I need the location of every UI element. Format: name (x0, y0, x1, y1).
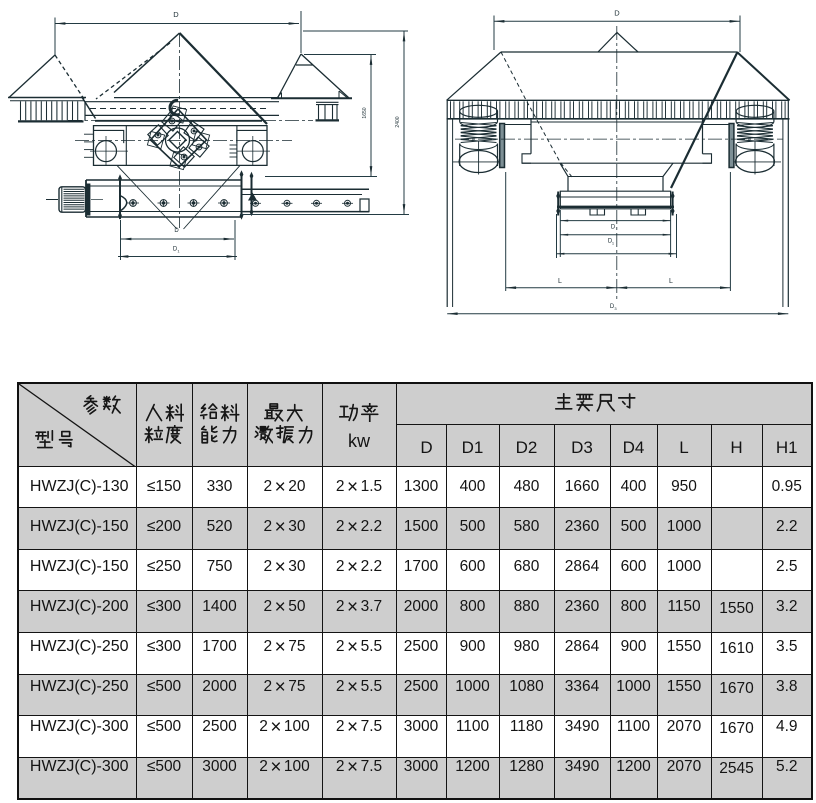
svg-text:2400: 2400 (395, 116, 401, 127)
svg-text:3: 3 (614, 306, 617, 311)
svg-text:L: L (558, 278, 562, 285)
svg-text:1650: 1650 (362, 107, 368, 118)
svg-text:D: D (611, 225, 616, 231)
svg-text:1: 1 (177, 249, 180, 254)
svg-text:D: D (174, 228, 179, 234)
svg-text:D: D (614, 9, 620, 18)
svg-text:L: L (669, 278, 673, 285)
svg-text:1: 1 (612, 241, 615, 246)
svg-text:D: D (173, 10, 179, 19)
